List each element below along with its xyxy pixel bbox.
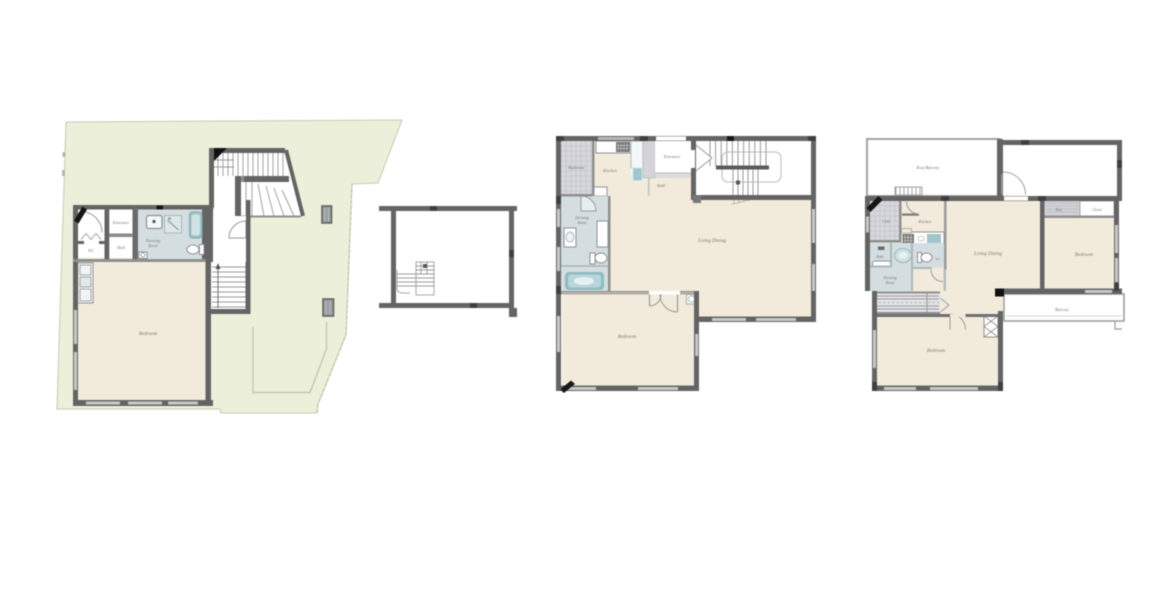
svg-text:Bedroom: Bedroom	[618, 335, 637, 340]
svg-text:Room: Room	[577, 221, 587, 225]
svg-text:Stor.: Stor.	[1056, 208, 1063, 212]
svg-text:WC: WC	[88, 248, 94, 253]
svg-text:Balcony: Balcony	[1055, 307, 1069, 312]
svg-text:Closet: Closet	[1092, 208, 1103, 212]
svg-text:Kitchen: Kitchen	[917, 219, 931, 224]
svg-text:Room: Room	[885, 281, 895, 285]
svg-text:Entrance: Entrance	[663, 154, 681, 159]
svg-text:Hall: Hall	[656, 183, 666, 188]
svg-text:Hall: Hall	[116, 245, 126, 250]
svg-text:CWS: CWS	[882, 220, 890, 224]
svg-text:Washroom: Washroom	[568, 166, 584, 170]
svg-text:Bedroom: Bedroom	[927, 349, 946, 354]
svg-text:Roof Balcony: Roof Balcony	[916, 165, 940, 170]
svg-text:Living Dining: Living Dining	[697, 239, 726, 244]
svg-text:Kitchen: Kitchen	[602, 168, 618, 173]
svg-text:Bath: Bath	[876, 255, 883, 259]
svg-text:Entrance: Entrance	[112, 220, 130, 225]
svg-text:Living Dining: Living Dining	[973, 252, 1002, 257]
svg-text:Dressing: Dressing	[882, 276, 897, 280]
svg-text:Bedroom: Bedroom	[1075, 253, 1094, 258]
svg-text:WC: WC	[935, 257, 941, 261]
svg-text:Bedroom: Bedroom	[139, 332, 158, 337]
svg-text:Room: Room	[147, 243, 157, 248]
svg-text:Dressing: Dressing	[574, 216, 589, 220]
